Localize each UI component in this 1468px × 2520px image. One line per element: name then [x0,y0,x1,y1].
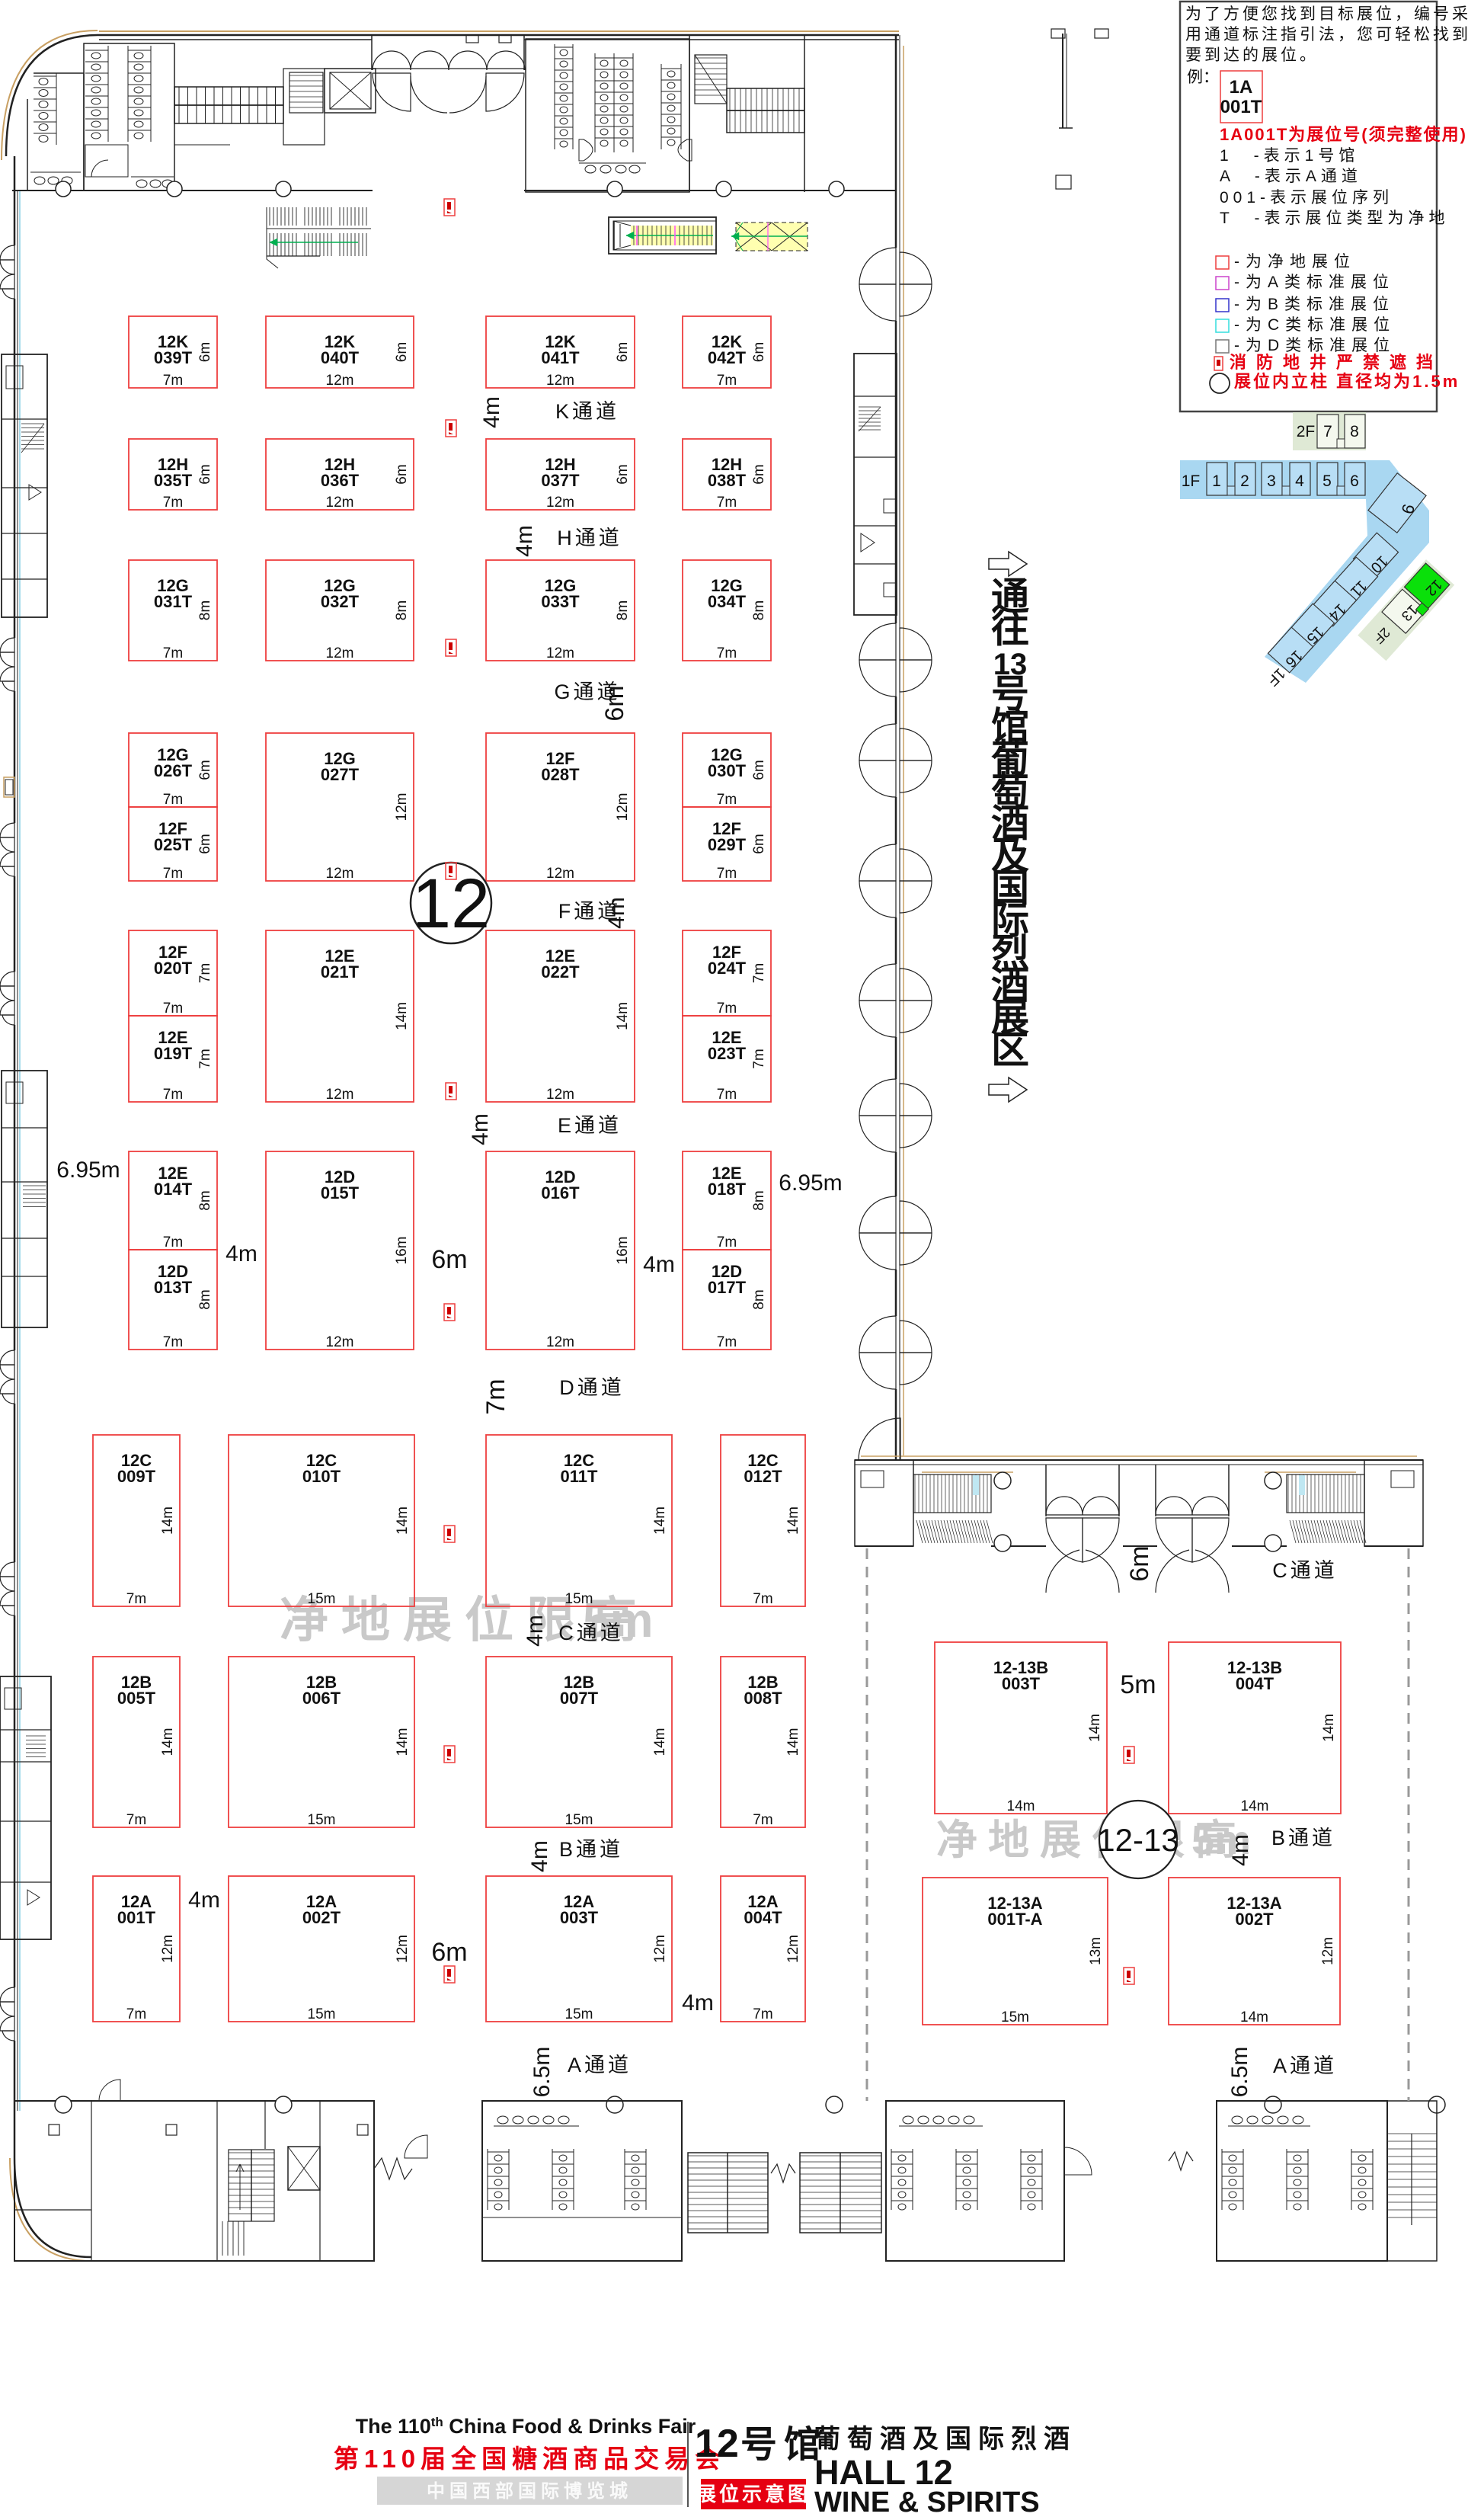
svg-text:7m: 7m [163,1001,183,1017]
svg-text:004T: 004T [744,1908,782,1927]
svg-text:1 -表示1号馆: 1 -表示1号馆 [1220,147,1359,165]
svg-text:4m: 4m [188,1888,220,1913]
svg-text:6m: 6m [394,464,410,484]
svg-text:12m: 12m [546,495,574,511]
svg-text:13m: 13m [1088,1937,1104,1965]
svg-text:037T: 037T [541,471,580,490]
svg-text:010T: 010T [302,1467,341,1486]
svg-text:-为D类标准展位: -为D类标准展位 [1234,337,1396,354]
svg-text:024T: 024T [708,959,747,978]
svg-text:H通道: H通道 [557,527,622,549]
svg-text:14m: 14m [160,1728,176,1756]
svg-text:7: 7 [1323,423,1332,440]
svg-text:2: 2 [1240,472,1249,490]
svg-text:12m: 12m [160,1935,176,1963]
svg-text:8m: 8m [197,600,213,620]
svg-text:4m: 4m [479,396,504,428]
svg-text:1A: 1A [1230,77,1253,98]
svg-text:16m: 16m [394,1237,410,1265]
svg-text:B通道: B通道 [1271,1827,1335,1849]
svg-text:023T: 023T [708,1044,747,1063]
svg-text:14m: 14m [1007,1798,1035,1814]
svg-text:7m: 7m [717,495,737,511]
svg-text:006T: 006T [302,1689,341,1708]
svg-text:6m: 6m [615,464,631,484]
svg-text:4: 4 [1295,472,1304,490]
svg-text:为了方便您找到目标展位，编号采: 为了方便您找到目标展位，编号采 [1185,5,1468,23]
svg-text:B通道: B通道 [559,1838,623,1861]
svg-text:7m: 7m [163,645,183,661]
svg-text:要到达的展位。: 要到达的展位。 [1185,46,1319,64]
svg-text:12m: 12m [652,1935,668,1963]
svg-text:14m: 14m [1087,1714,1103,1742]
svg-text:003T: 003T [1002,1674,1041,1693]
svg-text:4m: 4m [527,1840,552,1872]
svg-text:-为B类标准展位: -为B类标准展位 [1234,296,1395,313]
svg-text:A -表示A通道: A -表示A通道 [1220,168,1362,185]
svg-text:6m: 6m [197,760,213,780]
svg-text:6m: 6m [197,342,213,362]
svg-text:7m: 7m [163,866,183,882]
svg-text:7m: 7m [717,1087,737,1103]
svg-text:012T: 012T [744,1467,782,1486]
svg-text:展位内立柱 直径均为1.5m: 展位内立柱 直径均为1.5m [1234,372,1460,391]
svg-text:019T: 019T [154,1044,193,1063]
svg-text:7m: 7m [163,1334,183,1350]
svg-text:6m: 6m [615,342,631,362]
svg-text:6m: 6m [431,1245,467,1274]
svg-text:002T: 002T [1235,1910,1274,1929]
svg-text:葡萄酒及国际烈酒: 葡萄酒及国际烈酒 [814,2425,1076,2454]
svg-text:7m: 7m [197,1049,213,1068]
svg-text:1: 1 [1212,472,1221,490]
svg-text:7m: 7m [717,645,737,661]
svg-text:12m: 12m [785,1935,801,1963]
svg-text:7m: 7m [751,963,767,983]
svg-text:12-13: 12-13 [1097,1822,1179,1858]
svg-text:001-表示展位序列: 001-表示展位序列 [1220,189,1393,207]
svg-text:001T: 001T [117,1908,156,1927]
svg-text:003T: 003T [560,1908,599,1927]
svg-text:4m: 4m [682,1990,714,2016]
svg-text:007T: 007T [560,1689,599,1708]
svg-text:025T: 025T [154,835,193,854]
svg-text:018T: 018T [708,1180,747,1199]
svg-text:16m: 16m [615,1237,631,1265]
svg-text:15m: 15m [565,1591,593,1607]
svg-text:8m: 8m [394,600,410,620]
svg-text:12m: 12m [1320,1937,1336,1965]
svg-text:12m: 12m [326,373,354,389]
svg-text:14m: 14m [785,1728,801,1756]
svg-text:4m: 4m [1228,1834,1253,1866]
svg-text:4m: 4m [604,897,629,929]
svg-text:2F: 2F [1297,423,1316,440]
svg-text:016T: 016T [541,1183,580,1202]
svg-text:第110届全国糖酒商品交易会: 第110届全国糖酒商品交易会 [334,2445,725,2473]
svg-text:12m: 12m [326,645,354,661]
svg-text:8m: 8m [615,600,631,620]
svg-text:6m: 6m [751,834,767,853]
svg-text:E通道: E通道 [558,1114,622,1137]
svg-text:004T: 004T [1236,1674,1275,1693]
svg-text:14m: 14m [394,1002,410,1030]
svg-text:14m: 14m [1241,1798,1269,1814]
svg-text:001T-A: 001T-A [987,1910,1042,1929]
svg-text:7m: 7m [126,2006,146,2022]
svg-text:6m: 6m [1125,1545,1154,1581]
svg-text:009T: 009T [117,1467,156,1486]
svg-text:017T: 017T [708,1278,747,1297]
svg-text:040T: 040T [321,348,360,367]
svg-text:6m: 6m [431,1938,467,1967]
svg-text:7m: 7m [126,1812,146,1828]
svg-text:14m: 14m [615,1002,631,1030]
svg-text:7m: 7m [717,1334,737,1350]
svg-text:-为净地展位: -为净地展位 [1234,253,1356,271]
svg-text:3: 3 [1267,472,1276,490]
svg-text:12m: 12m [394,793,410,821]
svg-text:14m: 14m [785,1507,801,1535]
svg-text:12: 12 [695,2422,739,2466]
svg-text:6m: 6m [394,342,410,362]
svg-text:例：: 例： [1187,69,1219,86]
svg-text:4m: 4m [468,1113,493,1145]
svg-text:12m: 12m [615,793,631,821]
svg-text:7m: 7m [197,963,213,983]
svg-text:7m: 7m [163,373,183,389]
svg-text:027T: 027T [321,765,360,784]
svg-text:7m: 7m [163,495,183,511]
svg-text:6m: 6m [600,685,629,721]
svg-text:4m: 4m [512,525,537,557]
svg-text:7m: 7m [751,1049,767,1068]
svg-text:7m: 7m [717,373,737,389]
svg-text:12m: 12m [326,1334,354,1350]
svg-text:8m: 8m [751,1289,767,1309]
svg-text:14m: 14m [160,1507,176,1535]
svg-text:12m: 12m [546,645,574,661]
svg-text:6m: 6m [751,342,767,362]
svg-text:5: 5 [1322,472,1332,490]
svg-text:5m: 5m [1120,1670,1156,1699]
svg-text:7m: 7m [717,792,737,808]
svg-text:033T: 033T [541,592,580,611]
svg-text:T -表示展位类型为净地: T -表示展位类型为净地 [1220,210,1449,227]
svg-text:1A001T为展位号(须完整使用): 1A001T为展位号(须完整使用) [1220,125,1467,144]
svg-text:030T: 030T [708,761,747,780]
svg-text:7m: 7m [753,1812,772,1828]
svg-text:035T: 035T [154,471,193,490]
svg-text:区: 区 [991,1029,1029,1071]
svg-text:8m: 8m [751,1190,767,1210]
svg-text:028T: 028T [541,765,580,784]
svg-text:15m: 15m [1001,2009,1029,2025]
svg-text:14m: 14m [652,1728,668,1756]
svg-text:7m: 7m [753,1591,772,1607]
svg-text:005T: 005T [117,1689,156,1708]
svg-text:15m: 15m [565,1812,593,1828]
svg-text:7m: 7m [163,1234,183,1250]
svg-text:4m: 4m [225,1241,257,1266]
svg-text:12m: 12m [326,1087,354,1103]
svg-text:14m: 14m [1240,2009,1268,2025]
svg-text:WINE & SPIRITS: WINE & SPIRITS [814,2486,1040,2518]
svg-text:12m: 12m [546,1334,574,1350]
svg-text:7m: 7m [717,866,737,882]
svg-text:1F: 1F [1182,472,1201,490]
svg-text:15m: 15m [308,1591,336,1607]
svg-text:7m: 7m [717,1234,737,1250]
svg-text:6m: 6m [751,464,767,484]
svg-text:K通道: K通道 [555,400,619,423]
svg-text:14m: 14m [395,1507,411,1535]
svg-text:12m: 12m [546,1087,574,1103]
svg-text:008T: 008T [744,1689,782,1708]
svg-text:C通道: C通道 [558,1622,624,1644]
svg-text:7m: 7m [163,1087,183,1103]
svg-text:8m: 8m [197,1289,213,1309]
svg-text:021T: 021T [321,962,360,981]
svg-text:039T: 039T [154,348,193,367]
svg-text:029T: 029T [708,835,747,854]
svg-text:7m: 7m [717,1001,737,1017]
svg-text:12m: 12m [546,866,574,882]
svg-text:8m: 8m [751,600,767,620]
svg-text:6m: 6m [197,834,213,853]
svg-text:12m: 12m [546,373,574,389]
svg-text:中国西部国际博览城: 中国西部国际博览城 [427,2480,632,2502]
svg-text:041T: 041T [541,348,580,367]
svg-text:015T: 015T [321,1183,360,1202]
svg-text:15m: 15m [565,2006,593,2022]
svg-text:-为C类标准展位: -为C类标准展位 [1234,316,1396,334]
svg-text:4m: 4m [643,1252,675,1277]
svg-text:6.95m: 6.95m [779,1170,842,1196]
svg-text:A通道: A通道 [568,2054,632,2077]
svg-text:032T: 032T [321,592,360,611]
svg-text:7m: 7m [163,792,183,808]
svg-text:001T: 001T [1220,97,1262,117]
svg-text:6.5m: 6.5m [529,2047,555,2098]
svg-text:14m: 14m [1321,1714,1337,1742]
svg-text:D通道: D通道 [559,1376,625,1399]
svg-text:034T: 034T [708,592,747,611]
svg-text:消防地井严禁遮挡: 消防地井严禁遮挡 [1230,353,1443,372]
svg-text:6: 6 [1350,472,1359,490]
svg-text:4m: 4m [523,1615,548,1647]
svg-text:011T: 011T [561,1467,598,1486]
svg-text:013T: 013T [154,1278,193,1297]
svg-text:-为A类标准展位: -为A类标准展位 [1234,274,1395,291]
svg-text:002T: 002T [302,1908,341,1927]
svg-text:6m: 6m [751,760,767,780]
svg-text:15m: 15m [308,2006,336,2022]
svg-text:The 110th China Food & Drinks: The 110th China Food & Drinks Fair [356,2415,696,2438]
svg-text:往: 往 [991,608,1029,651]
svg-text:12m: 12m [326,495,354,511]
svg-text:6m: 6m [197,464,213,484]
svg-text:展位示意图: 展位示意图 [696,2483,811,2506]
svg-text:042T: 042T [708,348,747,367]
svg-text:038T: 038T [708,471,747,490]
svg-text:022T: 022T [541,962,580,981]
svg-text:014T: 014T [154,1180,193,1199]
svg-text:6.95m: 6.95m [56,1158,120,1183]
svg-text:12m: 12m [395,1935,411,1963]
svg-text:A通道: A通道 [1273,2054,1337,2077]
svg-text:12m: 12m [326,866,354,882]
svg-text:14m: 14m [652,1507,668,1535]
svg-text:15m: 15m [308,1812,336,1828]
svg-text:7m: 7m [126,1591,146,1607]
svg-text:用通道标注指引法，您可轻松找到: 用通道标注指引法，您可轻松找到 [1185,26,1468,43]
svg-text:031T: 031T [154,592,193,611]
svg-text:C通道: C通道 [1272,1559,1338,1582]
svg-text:026T: 026T [154,761,193,780]
svg-text:020T: 020T [154,959,193,978]
svg-text:036T: 036T [321,471,360,490]
svg-text:14m: 14m [395,1728,411,1756]
svg-text:6.5m: 6.5m [1227,2047,1252,2098]
svg-text:8m: 8m [197,1190,213,1210]
svg-text:8: 8 [1350,423,1359,440]
svg-text:7m: 7m [481,1378,510,1414]
svg-text:7m: 7m [753,2006,772,2022]
